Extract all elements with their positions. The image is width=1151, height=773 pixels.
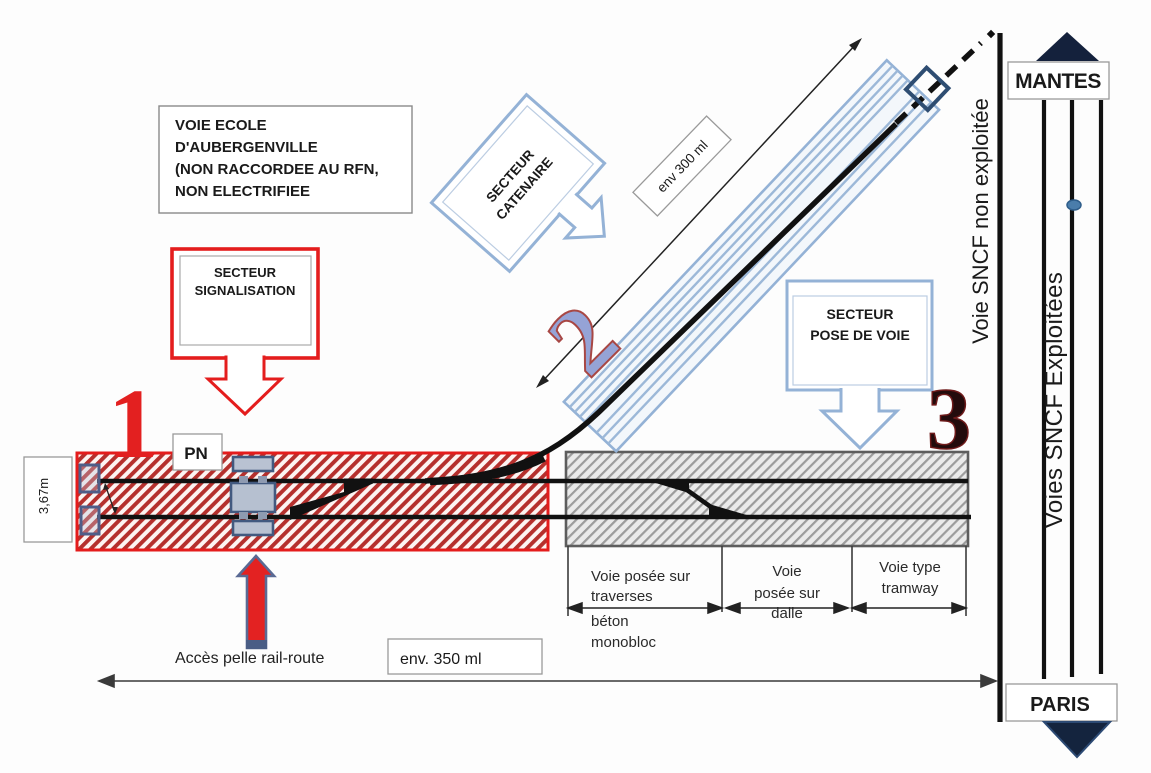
svg-text:posée sur: posée sur (754, 585, 820, 602)
svg-text:env. 350 ml: env. 350 ml (400, 651, 482, 668)
svg-text:(NON RACCORDEE AU RFN,: (NON RACCORDEE AU RFN, (175, 161, 379, 178)
svg-text:Voies SNCF Exploitées: Voies SNCF Exploitées (1041, 272, 1068, 529)
svg-text:Voie: Voie (772, 563, 801, 580)
svg-text:dalle: dalle (771, 605, 803, 622)
svg-text:3,67m: 3,67m (36, 478, 51, 514)
svg-text:POSE DE VOIE: POSE DE VOIE (810, 327, 910, 343)
svg-text:béton: béton (591, 613, 629, 630)
svg-text:1: 1 (108, 368, 158, 479)
svg-text:MANTES: MANTES (1015, 70, 1101, 93)
svg-text:PN: PN (184, 444, 208, 463)
svg-text:monobloc: monobloc (591, 634, 657, 651)
svg-text:3: 3 (927, 371, 971, 468)
svg-text:Voie type: Voie type (879, 559, 941, 576)
svg-text:NON ELECTRIFIEE: NON ELECTRIFIEE (175, 183, 310, 200)
svg-text:Voie SNCF non exploitée: Voie SNCF non exploitée (968, 98, 993, 344)
svg-text:D'AUBERGENVILLE: D'AUBERGENVILLE (175, 139, 318, 156)
svg-text:VOIE ECOLE: VOIE ECOLE (175, 117, 267, 134)
svg-text:Voie posée sur: Voie posée sur (591, 568, 690, 585)
svg-text:PARIS: PARIS (1030, 694, 1090, 716)
svg-text:SIGNALISATION: SIGNALISATION (195, 283, 296, 298)
svg-text:traverses: traverses (591, 588, 653, 605)
svg-text:SECTEUR: SECTEUR (214, 265, 277, 280)
svg-text:tramway: tramway (882, 580, 939, 597)
svg-text:SECTEUR: SECTEUR (827, 306, 894, 322)
svg-text:Accès pelle rail-route: Accès pelle rail-route (175, 650, 325, 667)
